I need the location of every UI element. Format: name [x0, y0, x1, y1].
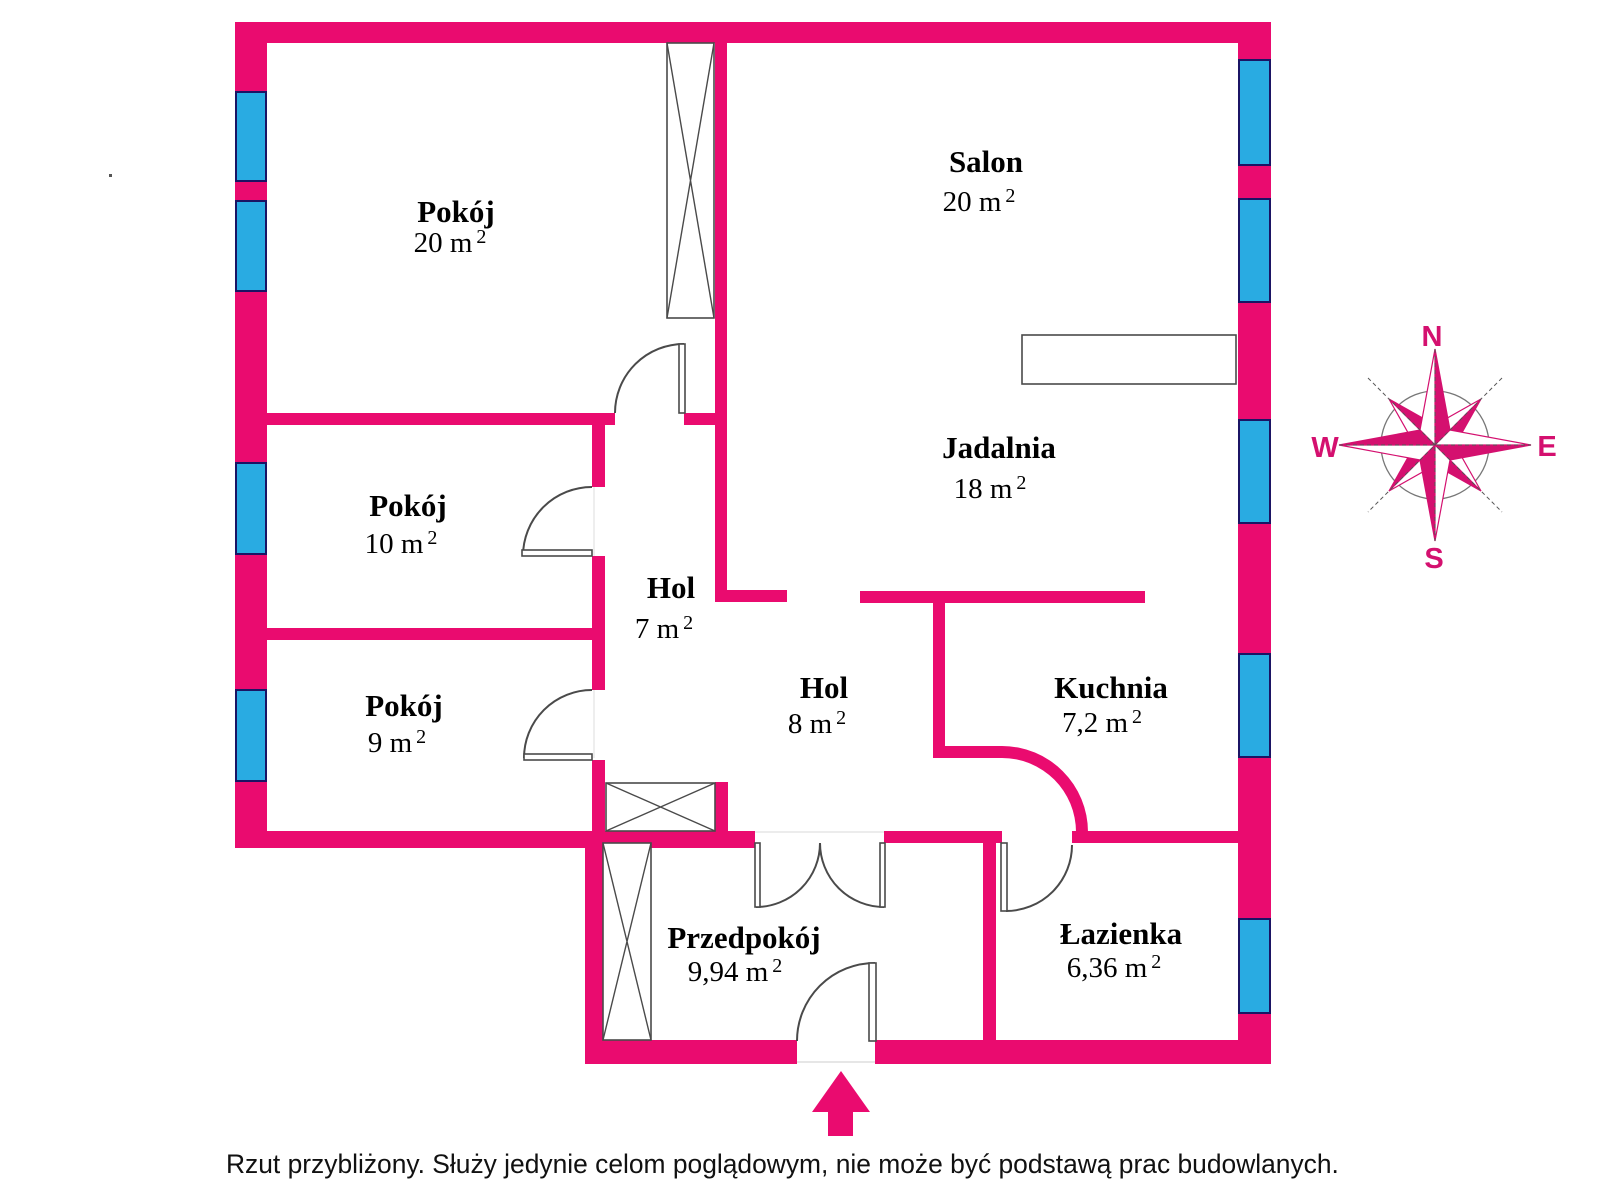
svg-text:Hol: Hol — [647, 570, 696, 605]
svg-text:Rzut przybliżony. Służy jedyni: Rzut przybliżony. Służy jedynie celom po… — [226, 1149, 1339, 1179]
svg-text:Salon: Salon — [949, 144, 1023, 179]
svg-text:20 m2: 20 m2 — [943, 185, 1016, 218]
svg-text:6,36 m2: 6,36 m2 — [1067, 951, 1162, 984]
svg-text:Pokój: Pokój — [417, 194, 495, 229]
svg-text:S: S — [1424, 543, 1443, 575]
svg-text:18 m2: 18 m2 — [954, 472, 1027, 505]
svg-text:Przedpokój: Przedpokój — [667, 920, 820, 955]
svg-text:Łazienka: Łazienka — [1060, 916, 1183, 951]
svg-text:20 m2: 20 m2 — [414, 226, 487, 259]
svg-text:Kuchnia: Kuchnia — [1054, 670, 1168, 705]
svg-text:Pokój: Pokój — [365, 688, 443, 723]
svg-text:7 m2: 7 m2 — [635, 612, 693, 645]
svg-text:7,2 m2: 7,2 m2 — [1062, 706, 1142, 739]
svg-text:N: N — [1422, 321, 1443, 353]
svg-text:Hol: Hol — [800, 670, 849, 705]
svg-text:9 m2: 9 m2 — [368, 726, 426, 759]
svg-text:W: W — [1311, 432, 1339, 464]
svg-text:8 m2: 8 m2 — [788, 707, 846, 740]
svg-text:9,94 m2: 9,94 m2 — [688, 955, 783, 988]
svg-text:10 m2: 10 m2 — [365, 527, 438, 560]
svg-text:Jadalnia: Jadalnia — [942, 430, 1056, 465]
svg-text:E: E — [1537, 431, 1556, 463]
svg-text:Pokój: Pokój — [369, 488, 447, 523]
